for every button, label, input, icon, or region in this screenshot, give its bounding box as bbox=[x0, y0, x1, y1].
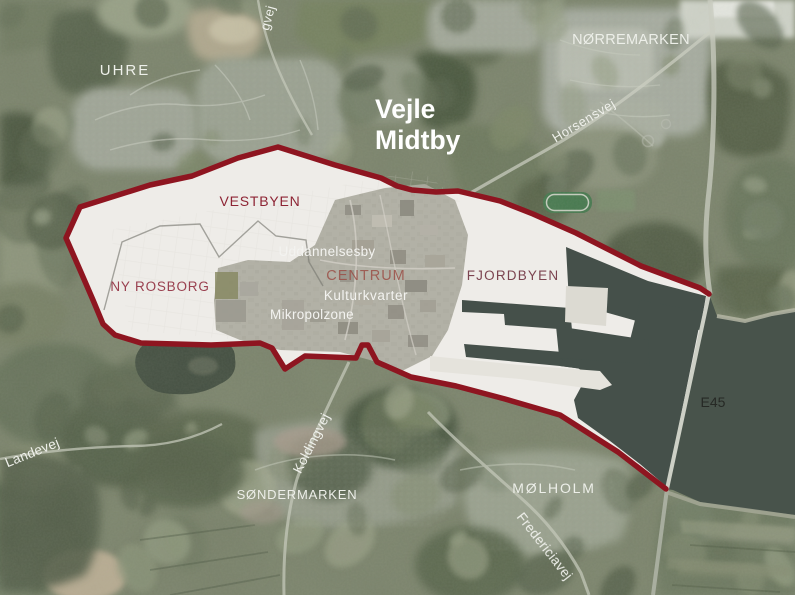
svg-text:SØNDERMARKEN: SØNDERMARKEN bbox=[237, 487, 358, 502]
svg-text:Midtby: Midtby bbox=[375, 125, 461, 155]
svg-text:Vejle: Vejle bbox=[375, 94, 435, 124]
svg-text:UHRE: UHRE bbox=[100, 62, 151, 79]
svg-text:Kulturkvarter: Kulturkvarter bbox=[324, 288, 408, 303]
svg-text:FJORDBYEN: FJORDBYEN bbox=[467, 268, 560, 283]
svg-text:E45: E45 bbox=[701, 394, 726, 410]
svg-text:NØRREMARKEN: NØRREMARKEN bbox=[572, 32, 690, 48]
svg-text:Mikropolzone: Mikropolzone bbox=[270, 307, 354, 322]
svg-text:CENTRUM: CENTRUM bbox=[326, 268, 406, 284]
svg-text:Uddannelsesby: Uddannelsesby bbox=[279, 244, 376, 259]
svg-text:NY ROSBORG: NY ROSBORG bbox=[110, 279, 209, 294]
svg-text:MØLHOLM: MØLHOLM bbox=[512, 480, 595, 496]
svg-text:VESTBYEN: VESTBYEN bbox=[219, 193, 300, 209]
